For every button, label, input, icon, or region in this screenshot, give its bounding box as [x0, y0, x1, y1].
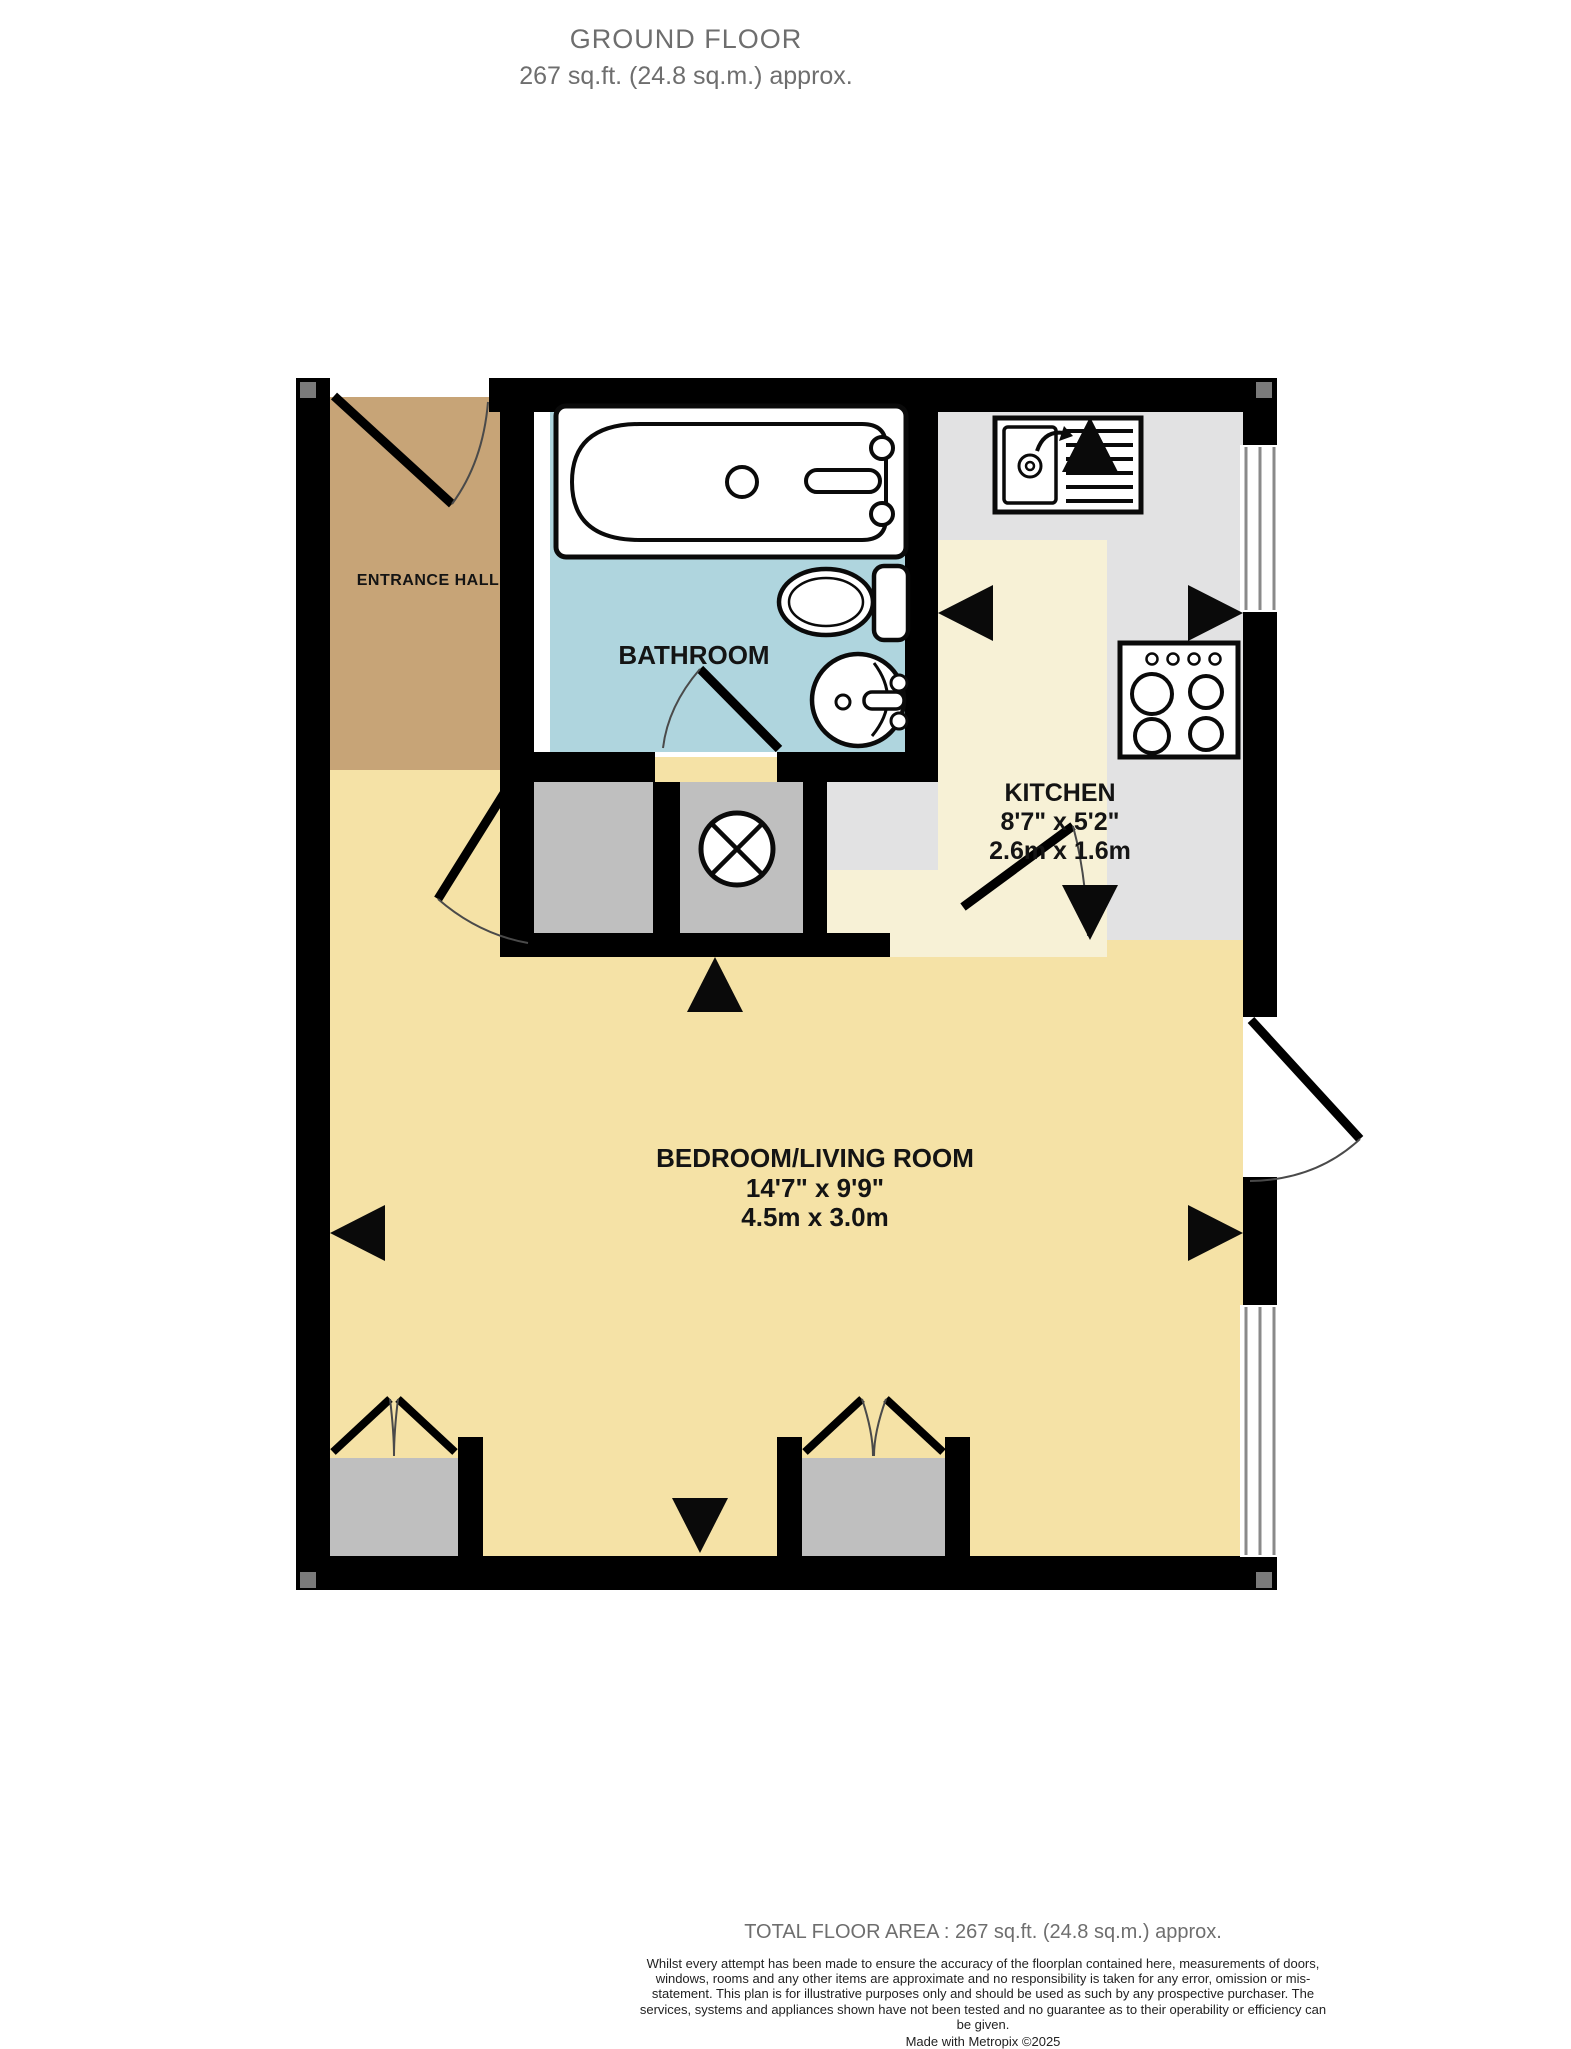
room-label-kitchen: KITCHEN 8'7" x 5'2" 2.6m x 1.6m [989, 779, 1131, 866]
floorplan-page: { "header": { "title": "GROUND FLOOR", "… [0, 0, 1571, 2048]
wall-bathroom-bottom-right [777, 752, 938, 782]
bedroom-name: BEDROOM/LIVING ROOM [656, 1144, 974, 1174]
floor-title: GROUND FLOOR [519, 24, 853, 55]
kitchen-dims-imperial: 8'7" x 5'2" [989, 808, 1131, 837]
floor-area-subtitle: 267 sq.ft. (24.8 sq.m.) approx. [519, 62, 853, 91]
floor-plan: ENTRANCE HALL BATHROOM KITCHEN 8'7" x 5'… [0, 0, 1571, 2048]
bedroom-dims-metric: 4.5m x 3.0m [656, 1203, 974, 1233]
kitchen-name: KITCHEN [989, 779, 1131, 808]
room-label-bedroom-living: BEDROOM/LIVING ROOM 14'7" x 9'9" 4.5m x … [656, 1144, 974, 1233]
wall-cupboard-mid [653, 782, 680, 933]
cooker-icon [1120, 643, 1238, 757]
disclaimer-text: Whilst every attempt has been made to en… [638, 1956, 1328, 2032]
bedroom-window-icon [1240, 1305, 1280, 1557]
closet-one [330, 1458, 458, 1556]
corner-marker-icon [1256, 1572, 1272, 1588]
room-floors [330, 397, 1243, 1556]
total-floor-area: TOTAL FLOOR AREA : 267 sq.ft. (24.8 sq.m… [744, 1921, 1222, 1944]
wall-corridor-bottom [500, 933, 890, 957]
fan-symbol-icon [701, 813, 773, 885]
floorplan-svg [0, 0, 1571, 2048]
basin-icon [812, 654, 907, 746]
wall-bathroom-bottom-left [500, 752, 655, 782]
wall-closet2-right [945, 1437, 970, 1556]
plan-header: GROUND FLOOR 267 sq.ft. (24.8 sq.m.) app… [519, 24, 853, 91]
corner-marker-icon [300, 382, 316, 398]
wall-left [296, 378, 330, 1590]
wall-right-3 [1243, 1177, 1277, 1307]
cupboard-one [534, 782, 653, 933]
bathtub-icon [556, 406, 906, 557]
wall-right-2 [1243, 610, 1277, 1017]
wall-closet2-left [777, 1437, 802, 1556]
corner-marker-icon [1256, 382, 1272, 398]
corner-marker-icon [300, 1572, 316, 1588]
closet-two [802, 1458, 945, 1556]
kitchen-worktop-west [827, 782, 938, 870]
disclaimer-block: Whilst every attempt has been made to en… [638, 1956, 1328, 2049]
room-label-entrance-hall: ENTRANCE HALL [357, 572, 500, 590]
bedroom-external-door-icon [1250, 1020, 1360, 1181]
room-label-bathroom: BATHROOM [618, 640, 769, 671]
bedroom-dims-imperial: 14'7" x 9'9" [656, 1174, 974, 1204]
toilet-icon [779, 566, 908, 640]
wall-bottom [296, 1556, 1277, 1590]
metropix-credit: Made with Metropix ©2025 [638, 2034, 1328, 2049]
wall-bathroom-left [500, 378, 534, 957]
kitchen-dims-metric: 2.6m x 1.6m [989, 837, 1131, 866]
kitchen-window-icon [1240, 445, 1280, 612]
wall-cupboard-right [803, 782, 827, 933]
wall-closet1-right [458, 1437, 483, 1556]
